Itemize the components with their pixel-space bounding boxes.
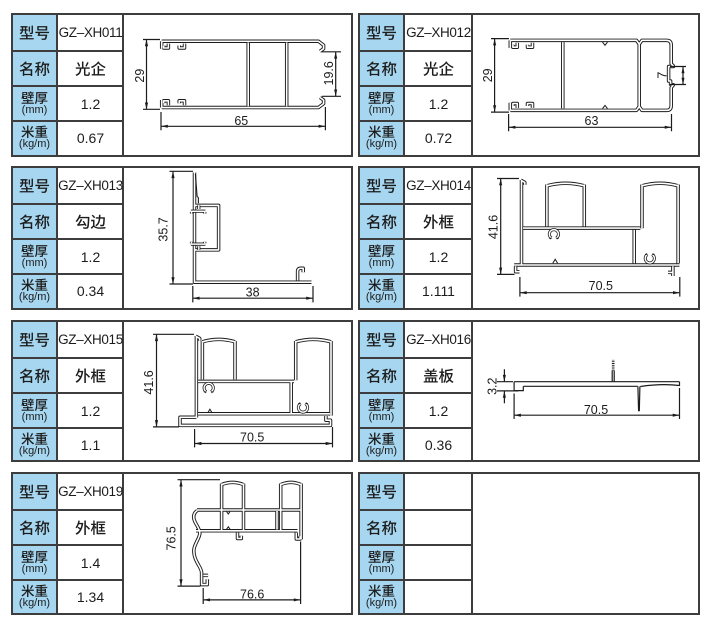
svg-text:38: 38 bbox=[246, 285, 260, 299]
svg-text:19.6: 19.6 bbox=[322, 61, 336, 85]
svg-text:70.5: 70.5 bbox=[584, 403, 608, 417]
svg-text:35.7: 35.7 bbox=[157, 217, 171, 241]
svg-text:70.5: 70.5 bbox=[240, 430, 264, 444]
svg-text:63: 63 bbox=[585, 114, 599, 128]
svg-text:70.5: 70.5 bbox=[589, 279, 613, 293]
svg-text:76.5: 76.5 bbox=[164, 526, 178, 550]
svg-text:7: 7 bbox=[656, 72, 670, 79]
svg-text:3.2: 3.2 bbox=[485, 377, 499, 394]
svg-text:29: 29 bbox=[133, 69, 147, 83]
svg-text:41.6: 41.6 bbox=[142, 370, 156, 394]
svg-text:65: 65 bbox=[234, 114, 248, 128]
svg-text:29: 29 bbox=[481, 68, 495, 82]
svg-text:41.6: 41.6 bbox=[487, 215, 501, 239]
svg-text:76.6: 76.6 bbox=[240, 587, 264, 601]
